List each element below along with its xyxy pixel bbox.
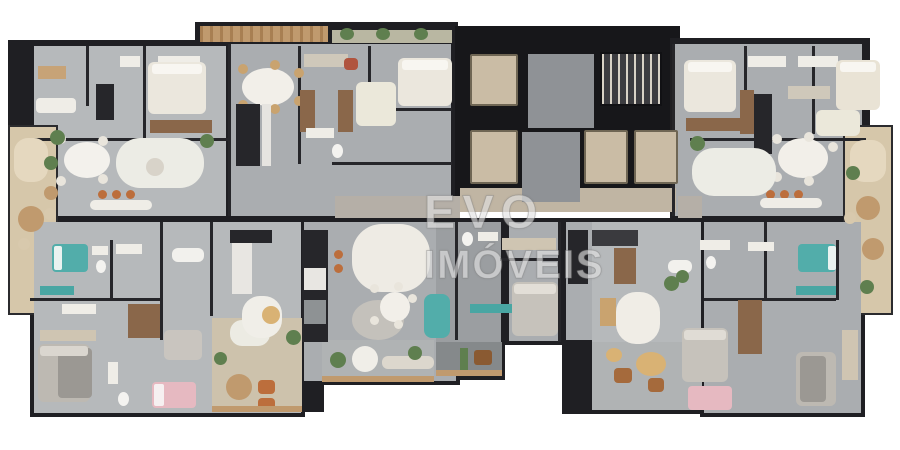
bathroom-sink xyxy=(748,56,786,67)
wall xyxy=(500,258,558,261)
bathroom-sink xyxy=(748,242,774,251)
bar-counter xyxy=(760,198,822,208)
hall-left xyxy=(335,196,460,218)
side-table-wood xyxy=(600,298,616,326)
balcony-table xyxy=(352,346,378,372)
dining-chair xyxy=(804,176,814,186)
bar-stool xyxy=(126,190,135,199)
wall xyxy=(86,46,89,106)
balcony-chair xyxy=(18,238,30,250)
dining-chair xyxy=(370,284,379,293)
plant xyxy=(690,136,705,151)
lounge-striped xyxy=(816,110,860,136)
plant xyxy=(330,352,346,368)
bathroom-sink xyxy=(700,240,730,250)
dining-chair xyxy=(394,320,403,329)
wall xyxy=(143,46,146,138)
wall xyxy=(764,222,767,300)
desk xyxy=(304,54,348,67)
plant xyxy=(50,130,65,145)
kitchen-counter-white xyxy=(262,104,271,166)
wall xyxy=(210,222,213,316)
bar-stool xyxy=(112,190,121,199)
bed-pillows xyxy=(152,64,202,74)
deck-top xyxy=(200,26,328,42)
dining-table-oval xyxy=(242,68,294,106)
kitchen-counter xyxy=(754,94,772,154)
elevator-bottom-3 xyxy=(634,130,678,184)
lounge-chair xyxy=(14,138,48,182)
dining-chair xyxy=(772,134,782,144)
bed-pillows xyxy=(684,330,726,340)
terrace-chair xyxy=(614,368,632,383)
bathroom-sink xyxy=(62,304,96,314)
bar-stool xyxy=(334,250,343,259)
terrace-chair xyxy=(258,380,275,394)
bar-stool xyxy=(334,264,343,273)
island-wood-top xyxy=(262,306,280,324)
dining-table xyxy=(380,292,410,322)
coffee-table xyxy=(146,158,164,176)
kitchen-counter xyxy=(236,104,260,166)
dining-chair xyxy=(804,132,814,142)
plant xyxy=(286,330,301,345)
wall xyxy=(110,240,113,300)
terrace-chair xyxy=(648,378,664,392)
deck-edge xyxy=(212,406,302,412)
daybed xyxy=(36,98,76,113)
bar-counter xyxy=(90,200,152,210)
desk-teal xyxy=(470,304,512,313)
dining-chair xyxy=(270,60,280,70)
plant xyxy=(846,166,860,180)
kitchen-counter-white xyxy=(232,242,252,294)
hall-right xyxy=(678,196,702,218)
desk xyxy=(38,66,66,79)
wall xyxy=(558,222,561,342)
elevator-top xyxy=(470,54,518,106)
wall xyxy=(836,240,839,300)
desk-teal xyxy=(40,286,74,295)
plant xyxy=(340,28,354,40)
wall xyxy=(704,298,836,301)
bathroom-sink xyxy=(92,246,108,255)
wall xyxy=(228,44,231,216)
balcony-chair xyxy=(44,208,56,220)
wardrobe xyxy=(842,330,858,380)
wall xyxy=(160,222,163,340)
sofa-teal xyxy=(424,294,450,338)
plant xyxy=(408,346,422,360)
bathtub xyxy=(172,248,204,262)
terrace-table xyxy=(226,374,252,400)
elevator-bottom-1 xyxy=(470,130,518,184)
column-stub-left xyxy=(300,380,324,412)
bed-pillows xyxy=(828,246,836,270)
dining-chair xyxy=(828,142,838,152)
wardrobe xyxy=(150,120,212,133)
wall xyxy=(332,162,452,165)
deck-edge xyxy=(436,370,502,376)
bed-pillows xyxy=(154,384,164,406)
shelf xyxy=(614,248,636,284)
lounge-striped xyxy=(356,82,396,126)
bathroom-sink xyxy=(120,56,140,67)
bed-pillows xyxy=(40,346,88,356)
toilet xyxy=(332,144,343,158)
dining-chair xyxy=(394,282,403,291)
elevator-bottom-2 xyxy=(584,130,628,184)
wardrobe xyxy=(502,238,556,250)
bed-throw xyxy=(800,356,826,402)
terrace-table xyxy=(606,348,622,362)
accent-chair xyxy=(344,58,358,70)
closet xyxy=(738,300,762,354)
plant xyxy=(44,156,58,170)
balcony-table xyxy=(862,238,884,260)
kitchen-counter-gray xyxy=(304,300,326,324)
desk-teal xyxy=(796,286,836,295)
kitchen-counter xyxy=(568,230,588,284)
balcony-table xyxy=(856,196,880,220)
balcony-sofa xyxy=(382,356,434,369)
plant xyxy=(376,28,390,40)
shelf xyxy=(740,90,754,134)
sofa-curved xyxy=(352,224,430,292)
toilet xyxy=(118,392,129,406)
bed-pillows xyxy=(402,60,448,70)
tv-console xyxy=(592,230,638,246)
toilet xyxy=(706,256,716,269)
shelf xyxy=(338,90,353,132)
dining-chair xyxy=(370,316,379,325)
bed-pillows xyxy=(840,62,876,72)
plant xyxy=(676,270,689,283)
bed-pillows xyxy=(514,284,556,294)
wall xyxy=(455,222,458,340)
dining-chair xyxy=(294,68,304,78)
sofa-curved xyxy=(692,148,776,196)
dining-chair xyxy=(270,104,280,114)
wall xyxy=(396,108,452,111)
shelf xyxy=(300,90,315,132)
wardrobe xyxy=(686,118,742,131)
toilet xyxy=(96,260,106,273)
closet xyxy=(128,304,160,338)
side-table xyxy=(44,186,58,200)
bed-small xyxy=(164,330,202,360)
balcony-chair xyxy=(844,212,856,224)
core-lobby xyxy=(522,132,580,202)
plant xyxy=(414,28,428,40)
kitchen-counter-white xyxy=(304,268,326,290)
bed-pillows xyxy=(688,62,732,72)
bathroom-sink xyxy=(306,128,334,138)
planter-box xyxy=(460,348,468,372)
terrace-table xyxy=(636,352,666,376)
bathroom-sink xyxy=(798,56,838,67)
floor-plan: EVO IMÓVEIS xyxy=(0,0,900,450)
kitchen-counter xyxy=(96,84,114,120)
sofa-curved xyxy=(616,292,660,344)
bathroom-sink xyxy=(478,232,498,241)
core-vestibule xyxy=(528,54,594,128)
desk xyxy=(788,86,830,99)
dining-chair xyxy=(408,294,417,303)
wardrobe xyxy=(40,330,96,341)
dining-chair xyxy=(56,176,66,186)
dining-chair xyxy=(98,174,108,184)
dining-chair xyxy=(238,64,248,74)
plant xyxy=(200,134,214,148)
bathroom-sink xyxy=(116,244,142,254)
stairwell xyxy=(600,52,662,106)
terrace-chair xyxy=(474,350,492,365)
wall xyxy=(30,298,162,301)
kitchen-counter xyxy=(230,230,272,243)
bar-stool xyxy=(98,190,107,199)
bed-pillows xyxy=(54,246,62,270)
dining-table xyxy=(64,142,110,178)
deck-edge xyxy=(322,376,434,382)
bathroom-sink xyxy=(108,362,118,384)
plant xyxy=(214,352,227,365)
bed-pink xyxy=(688,386,732,410)
toilet xyxy=(462,232,473,246)
dining-table-oval xyxy=(778,138,828,178)
balcony-table xyxy=(18,206,44,232)
dining-chair xyxy=(98,136,108,146)
plant xyxy=(860,280,874,294)
